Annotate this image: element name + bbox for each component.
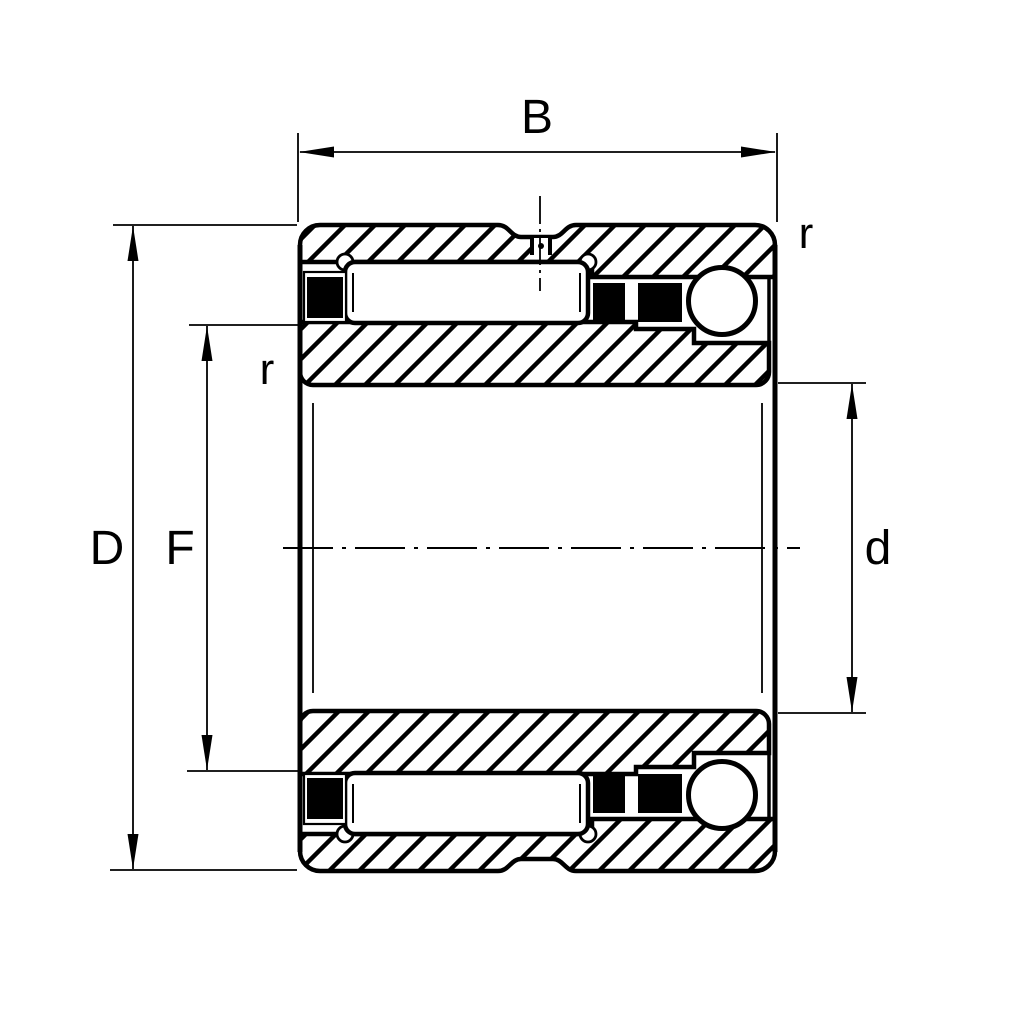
dimension-D bbox=[110, 225, 297, 870]
ball-cage-block bbox=[593, 774, 625, 813]
label-r-inner: r bbox=[260, 345, 275, 394]
arrowhead-up bbox=[847, 384, 858, 419]
needle-roller-bottom bbox=[345, 773, 588, 834]
label-F: F bbox=[165, 522, 194, 575]
top-half-section bbox=[300, 196, 775, 385]
dimension-F bbox=[187, 325, 298, 771]
arrowhead-left bbox=[299, 147, 334, 158]
ball-bottom bbox=[689, 762, 756, 829]
bearing-cross-section-drawing: B D F d r r bbox=[0, 0, 1023, 1024]
ball-cage-block bbox=[638, 283, 682, 322]
label-D: D bbox=[90, 522, 125, 575]
ball-cage-block bbox=[638, 774, 682, 813]
arrowhead-down bbox=[202, 735, 213, 770]
label-r-outer: r bbox=[799, 209, 814, 258]
arrowhead-up bbox=[202, 326, 213, 361]
ball-top bbox=[689, 268, 756, 335]
arrowhead-right bbox=[741, 147, 776, 158]
arrowhead-down bbox=[128, 834, 139, 869]
label-B: B bbox=[521, 91, 553, 144]
dimension-B bbox=[298, 133, 777, 222]
drawing-canvas: B D F d r r bbox=[0, 0, 1023, 1024]
inner-ring-bottom bbox=[300, 711, 769, 774]
seal-bottom bbox=[307, 778, 343, 819]
seal-top bbox=[307, 277, 343, 318]
arrowhead-down bbox=[847, 677, 858, 712]
label-d: d bbox=[865, 522, 892, 575]
lube-hole-dot bbox=[538, 243, 544, 249]
bottom-half-section bbox=[300, 711, 775, 871]
inner-ring-top bbox=[300, 322, 769, 385]
ball-cage-block bbox=[593, 283, 625, 322]
arrowhead-up bbox=[128, 226, 139, 261]
needle-roller-top bbox=[345, 262, 588, 323]
